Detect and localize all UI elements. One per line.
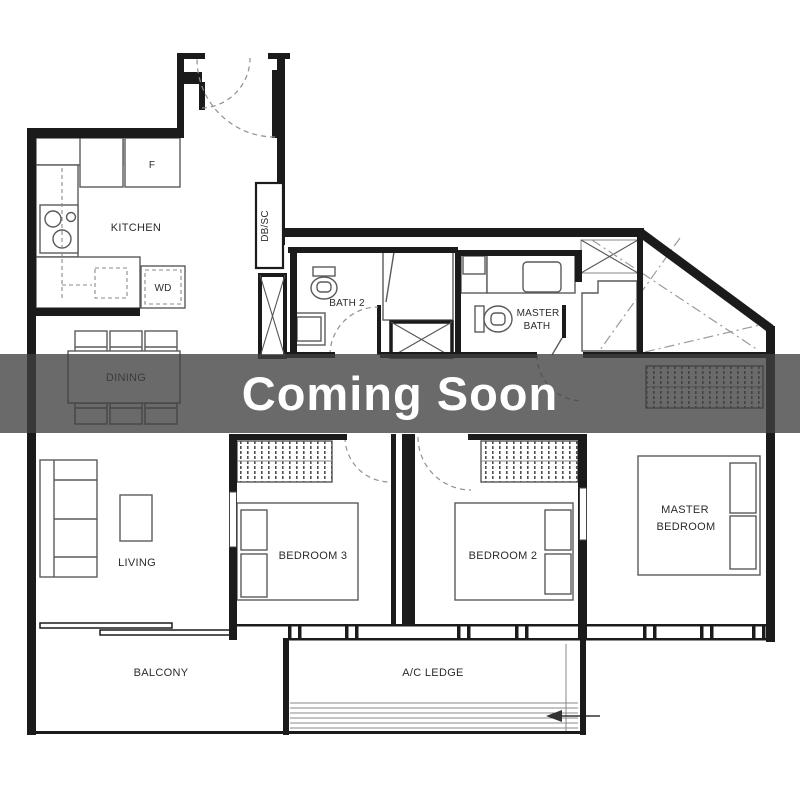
bath2-door-arc (330, 307, 378, 355)
bath2-shower-tray (391, 322, 452, 357)
bath2-door-leaf (377, 305, 381, 355)
master-bedroom-label-1: MASTER (661, 504, 709, 516)
direction-arrow-icon (546, 710, 600, 722)
washer-dryer-label: WD (154, 283, 171, 294)
bedroom3-label: BEDROOM 3 (279, 550, 348, 562)
vanity-basin-icon (487, 253, 575, 293)
sofa-icon (40, 460, 97, 577)
bedroom2-label: BEDROOM 2 (469, 550, 538, 562)
bedroom3-area (237, 437, 390, 600)
master-toilet-icon (475, 306, 512, 332)
vanity-cabinet (461, 253, 487, 293)
coffee-table (120, 495, 152, 541)
living-label: LIVING (118, 557, 156, 569)
service-shaft (260, 275, 285, 357)
bath2-label: BATH 2 (329, 298, 365, 309)
fridge-label: F (149, 160, 155, 171)
bath2-shower-room (383, 250, 453, 320)
master-bedroom-label-2: BEDROOM (657, 521, 716, 533)
entry-door-arc-right (197, 58, 275, 137)
ac-ledge-grille (290, 703, 578, 728)
entry-door-arc-left (202, 58, 250, 108)
master-shower-room (582, 281, 637, 351)
bedroom3-door-arc (345, 437, 390, 482)
floorplan-page: KITCHEN F WD DB/SC DINING LIVING BATH 2 … (0, 0, 800, 800)
coming-soon-banner: Coming Soon (0, 354, 800, 433)
entry-door-leaf-right (272, 82, 278, 138)
linen-closet (581, 240, 638, 273)
dbsc-label: DB/SC (260, 210, 271, 242)
bath2-sink-icon (293, 313, 325, 345)
master-bath-door-leaf (562, 305, 566, 338)
master-bath-area (461, 253, 637, 355)
bath2-area (293, 250, 453, 357)
master-bath-label-2: BATH (524, 321, 551, 332)
kitchen-label: KITCHEN (111, 222, 161, 234)
ac-ledge-label: A/C LEDGE (402, 667, 463, 679)
toilet-icon (311, 267, 337, 299)
bedroom3-window (230, 492, 237, 547)
bedroom2-window (580, 488, 587, 540)
cooktop-icon (40, 205, 78, 253)
coming-soon-text: Coming Soon (242, 366, 558, 421)
bedroom3-wardrobe (237, 441, 332, 482)
balcony-sliding-door (40, 623, 230, 635)
balcony-label: BALCONY (134, 667, 189, 679)
bedroom2-wardrobe (481, 441, 578, 482)
bedroom2-door-arc (418, 437, 471, 490)
ac-ledge-area (290, 644, 600, 733)
bedroom2-area (418, 437, 578, 600)
master-bath-label-1: MASTER (517, 308, 560, 319)
